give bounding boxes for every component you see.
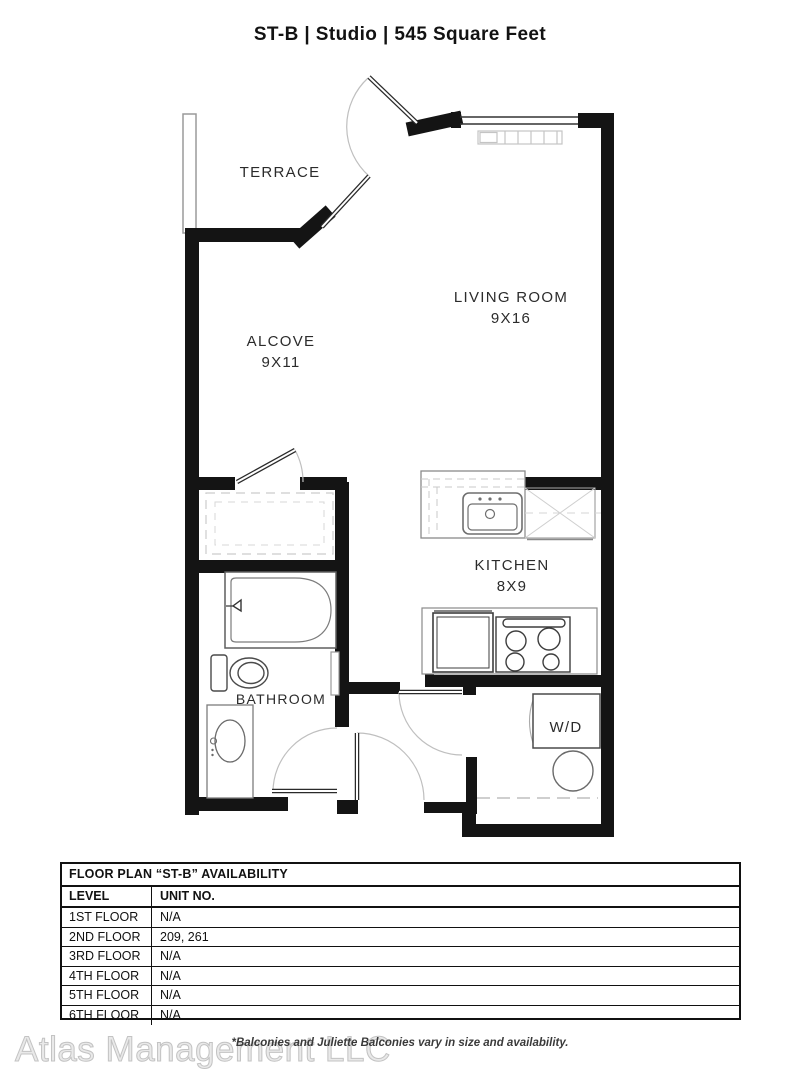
living-room-dims: 9X16 <box>491 310 531 327</box>
table-row: 2ND FLOOR 209, 261 <box>62 928 739 948</box>
level-cell: 2ND FLOOR <box>62 928 152 947</box>
washer-dryer-label: W/D <box>549 719 582 736</box>
level-cell: 5TH FLOOR <box>62 986 152 1005</box>
unit-cell: N/A <box>152 908 739 927</box>
kitchen-counter-lower <box>422 608 597 674</box>
floor-plan-page: ST-B | Studio | 545 Square Feet <box>0 0 800 1080</box>
bathroom-door <box>272 728 337 792</box>
company-watermark: Atlas Management LLC <box>15 1030 391 1070</box>
unit-cell: N/A <box>152 1006 739 1025</box>
balcony-disclaimer: *Balconies and Juliette Balconies vary i… <box>0 1037 800 1049</box>
level-cell: 6TH FLOOR <box>62 1006 152 1025</box>
level-cell: 3RD FLOOR <box>62 947 152 966</box>
terrace-door <box>322 77 417 227</box>
unit-cell: 209, 261 <box>152 928 739 947</box>
level-cell: 1ST FLOOR <box>62 908 152 927</box>
table-row: 3RD FLOOR N/A <box>62 947 739 967</box>
kitchen-label: KITCHEN <box>475 557 550 574</box>
hall-door <box>399 692 462 755</box>
living-room-window <box>460 117 578 124</box>
kitchen-dims: 8X9 <box>497 578 528 595</box>
kitchen-counter-sink <box>421 471 525 538</box>
terrace-label: TERRACE <box>240 164 321 181</box>
availability-table-title: FLOOR PLAN “ST-B” AVAILABILITY <box>62 864 739 887</box>
availability-table: FLOOR PLAN “ST-B” AVAILABILITY LEVEL UNI… <box>60 862 741 1020</box>
entry-door <box>357 733 424 800</box>
bathtub <box>225 572 336 648</box>
vanity-sink <box>207 705 253 798</box>
closet <box>206 493 333 554</box>
unit-cell: N/A <box>152 986 739 1005</box>
floor-plan-drawing: TERRACE LIVING ROOM 9X16 ALCOVE 9X11 KIT… <box>0 0 800 855</box>
toilet <box>211 655 268 691</box>
table-row: 5TH FLOOR N/A <box>62 986 739 1006</box>
closet-door <box>237 450 303 482</box>
level-cell: 4TH FLOOR <box>62 967 152 986</box>
col-header-level: LEVEL <box>62 887 152 906</box>
refrigerator <box>525 488 601 540</box>
water-heater <box>553 751 593 791</box>
living-room-label: LIVING ROOM <box>454 289 568 306</box>
col-header-unit-no: UNIT NO. <box>152 887 739 906</box>
table-row: 1ST FLOOR N/A <box>62 908 739 928</box>
unit-cell: N/A <box>152 947 739 966</box>
angled-walls <box>300 119 455 238</box>
availability-table-header: LEVEL UNIT NO. <box>62 887 739 908</box>
bathroom-label: BATHROOM <box>236 691 326 707</box>
terrace-railing <box>183 114 196 233</box>
medicine-cabinet <box>331 652 339 695</box>
table-row: 4TH FLOOR N/A <box>62 967 739 987</box>
alcove-label: ALCOVE <box>247 333 316 350</box>
unit-cell: N/A <box>152 967 739 986</box>
baseboard-heater <box>478 131 562 144</box>
alcove-dims: 9X11 <box>261 354 300 371</box>
table-row: 6TH FLOOR N/A <box>62 1006 739 1025</box>
